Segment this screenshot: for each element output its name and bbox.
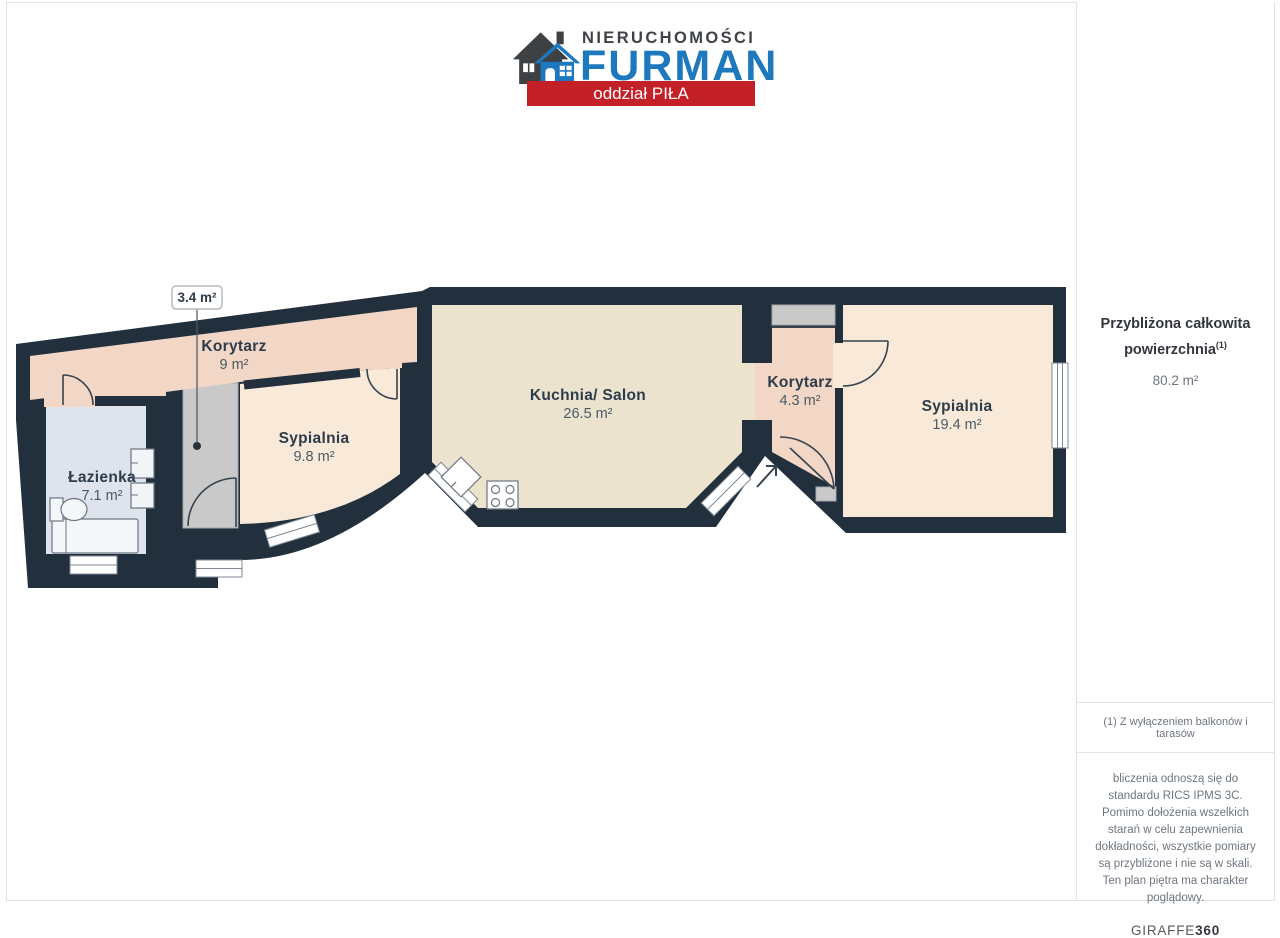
total-area-title-sup: (1) — [1216, 340, 1227, 350]
label-korytarz9-name: Korytarz — [201, 338, 266, 355]
total-area-title: Przybliżona całkowita powierzchnia(1) — [1089, 314, 1262, 361]
stove-icon — [487, 481, 518, 509]
bathtub-icon — [52, 519, 138, 553]
label-sypialnia98-area: 9.8 m² — [293, 449, 334, 465]
footnote-section: (1) Z wyłączeniem balkonów i tarasów — [1077, 703, 1274, 753]
label-korytarz43-name: Korytarz — [767, 374, 832, 391]
entry-wardrobe-strip — [772, 305, 835, 325]
label-sypialnia194-area: 19.4 m² — [932, 417, 981, 433]
label-lazienka-area: 7.1 m² — [81, 488, 122, 504]
total-area-title-text: Przybliżona całkowita powierzchnia — [1101, 316, 1251, 358]
label-korytarz9-area: 9 m² — [220, 357, 249, 373]
passage-bathroom-door — [44, 396, 96, 407]
label-kuchnia-area: 26.5 m² — [563, 406, 612, 422]
window-lazienka — [70, 556, 117, 574]
entrance-arrow-icon — [757, 466, 776, 487]
passage-bedroom-door — [833, 343, 843, 388]
label-sypialnia194-name: Sypialnia — [922, 398, 993, 415]
disclaimer-section: bliczenia odnoszą się do standardu RICS … — [1077, 753, 1274, 938]
disclaimer-text: bliczenia odnoszą się do standardu RICS … — [1088, 771, 1263, 907]
footnote-text: (1) Z wyłączeniem balkonów i tarasów — [1083, 716, 1268, 740]
info-sidebar: Przybliżona całkowita powierzchnia(1) 80… — [1076, 2, 1274, 900]
total-area-section: Przybliżona całkowita powierzchnia(1) 80… — [1077, 2, 1274, 703]
label-korytarz43-area: 4.3 m² — [779, 393, 820, 409]
window-below-closet — [196, 560, 242, 577]
giraffe-logo-360: 360 — [1195, 923, 1220, 938]
passage-kitchen-corridor — [755, 363, 772, 420]
callout-dot — [193, 442, 201, 450]
total-area-value: 80.2 m² — [1089, 373, 1262, 388]
giraffe360-logo: GIRAFFE360 — [1088, 923, 1263, 938]
label-lazienka-name: Łazienka — [68, 469, 136, 486]
callout-label: 3.4 m² — [177, 290, 217, 305]
giraffe-logo-text: GIRAFFE — [1131, 923, 1195, 938]
window-sypialnia-194 — [1052, 363, 1068, 448]
label-kuchnia-name: Kuchnia/ Salon — [530, 387, 646, 404]
label-sypialnia98-name: Sypialnia — [279, 430, 350, 447]
